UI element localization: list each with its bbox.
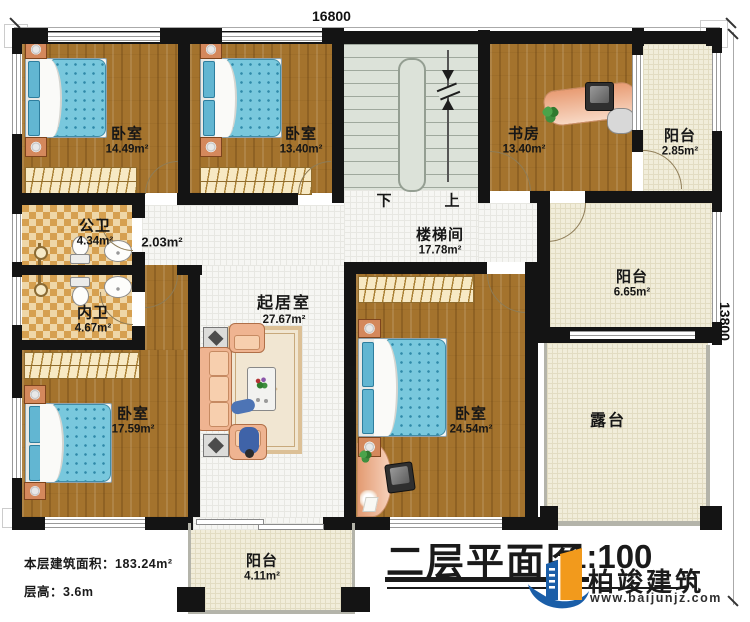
window (222, 32, 322, 42)
wall-bottom (323, 517, 390, 530)
window (48, 32, 160, 42)
wall-partition (632, 130, 643, 152)
bed-symbol (25, 58, 107, 138)
bed-pillow (203, 61, 215, 97)
window (12, 214, 22, 262)
floor-terrace (547, 343, 708, 521)
room-label-corridor: 2.03m² (141, 234, 182, 249)
sliding-door-panel (258, 524, 324, 530)
computer-monitor-symbol (384, 461, 416, 494)
wall-partition (585, 191, 712, 203)
wall-partition (22, 193, 145, 205)
wall-partition (178, 30, 190, 205)
wardrobe-symbol (358, 276, 474, 303)
bed-sheet-fold (40, 404, 63, 482)
armchair-symbol (229, 323, 265, 353)
room-label-study: 书房13.40m² (503, 125, 546, 156)
side-table-symbol (203, 434, 229, 457)
wall-column (160, 28, 222, 44)
wall-partition (132, 275, 145, 292)
wall-partition (22, 340, 145, 350)
nightstand-symbol (358, 319, 381, 338)
floor-height-text: 层高：3.6m (24, 581, 94, 600)
room-label-bath-public: 公卫4.34m² (77, 217, 113, 248)
room-label-balcony-e: 阳台6.65m² (614, 268, 650, 299)
towel-rail-knob (34, 283, 48, 297)
floor-hall-strip (478, 203, 537, 262)
bed-sheet-fold (215, 59, 237, 137)
bed-sheet-fold (40, 59, 62, 137)
stair-railing (398, 58, 426, 192)
dimension-top: 16800 (312, 8, 351, 24)
bed-pillow (29, 406, 41, 442)
wall-partition (537, 191, 550, 327)
room-label-balcony-s: 阳台4.11m² (244, 552, 280, 583)
bed-symbol (358, 338, 447, 437)
brand-website: www.baijunjz.com (590, 591, 722, 605)
tv-symbol (347, 366, 356, 412)
nightstand-symbol (24, 482, 46, 500)
terrace-parapet (706, 345, 710, 508)
wardrobe-symbol (25, 167, 137, 195)
wardrobe-symbol (24, 352, 140, 379)
bed-symbol (25, 403, 112, 483)
towel-rail-knob (34, 246, 48, 260)
wall-partition (132, 205, 145, 218)
wall-bottom (12, 517, 45, 530)
wall-column (341, 587, 370, 612)
plant-symbol (542, 106, 559, 123)
room-label-bedroom-nw: 卧室14.49m² (106, 125, 149, 156)
window (12, 54, 22, 134)
dimension-line-top (14, 27, 720, 28)
wall-bottom (145, 517, 193, 530)
wall-column (177, 587, 205, 612)
floor-plan-canvas: 16800 13800 (0, 0, 750, 622)
terrace-parapet (558, 521, 700, 526)
wall-partition (332, 30, 344, 203)
bed-pillow (203, 100, 215, 136)
wall-partition (132, 252, 145, 265)
room-label-bath-private: 内卫4.67m² (75, 304, 111, 335)
wall-partition (344, 262, 487, 274)
wall-partition (478, 191, 490, 203)
bed-symbol (200, 58, 282, 138)
window (390, 519, 502, 528)
wall-partition (22, 265, 145, 275)
brand-logo (524, 544, 592, 618)
sliding-door-panel (196, 519, 264, 525)
wall-column (540, 506, 558, 530)
nightstand-symbol (24, 385, 46, 404)
room-label-balcony-ne: 阳台2.85m² (662, 127, 698, 158)
window (12, 277, 22, 325)
person-head (245, 449, 254, 458)
wardrobe-symbol (200, 167, 312, 195)
nightstand-symbol (200, 137, 222, 157)
stair-arrowhead (442, 70, 454, 81)
window (712, 53, 722, 131)
room-label-bedroom-sw: 卧室17.59m² (112, 405, 155, 436)
bed-pillow (362, 342, 374, 387)
window (570, 331, 695, 339)
window (632, 55, 643, 130)
computer-monitor-symbol (585, 82, 614, 111)
wall-partition (478, 30, 490, 203)
toilet-symbol (70, 277, 90, 306)
wall-partition (177, 193, 298, 205)
balcony-parapet (188, 610, 355, 614)
bed-pillow (28, 100, 40, 136)
side-table-symbol (203, 327, 228, 348)
wall-column (700, 506, 722, 530)
room-label-stairwell: 楼梯间17.78m² (416, 226, 464, 257)
window (12, 398, 22, 478)
window (45, 519, 145, 528)
nightstand-symbol (25, 137, 47, 157)
floor-area-text: 本层建筑面积：183.24m² (24, 553, 173, 572)
terrace-parapet (544, 343, 547, 521)
office-chair-symbol (607, 108, 635, 134)
room-label-living: 起居室27.67m² (257, 295, 311, 327)
wall-partition (632, 30, 643, 55)
stair-up-label: 上 (444, 190, 459, 211)
bed-pillow (29, 445, 41, 481)
sofa-symbol (196, 347, 232, 431)
room-label-bedroom-n: 卧室13.40m² (280, 125, 323, 156)
dimension-line-right (733, 32, 734, 605)
bed-pillow (28, 61, 40, 97)
stair-arrowhead (442, 99, 454, 110)
plant-symbol (359, 450, 372, 463)
dimension-right: 13800 (717, 302, 733, 341)
building-logo-icon (524, 544, 592, 618)
room-label-bedroom-se: 卧室24.54m² (450, 405, 493, 436)
room-label-terrace: 露台 (590, 413, 626, 432)
flower-vase-symbol (253, 375, 270, 392)
bed-sheet-fold (374, 339, 398, 436)
bed-pillow (362, 389, 374, 434)
wall-bottom (502, 517, 545, 530)
stair-down-label: 下 (376, 190, 391, 211)
wall-partition (188, 265, 200, 517)
